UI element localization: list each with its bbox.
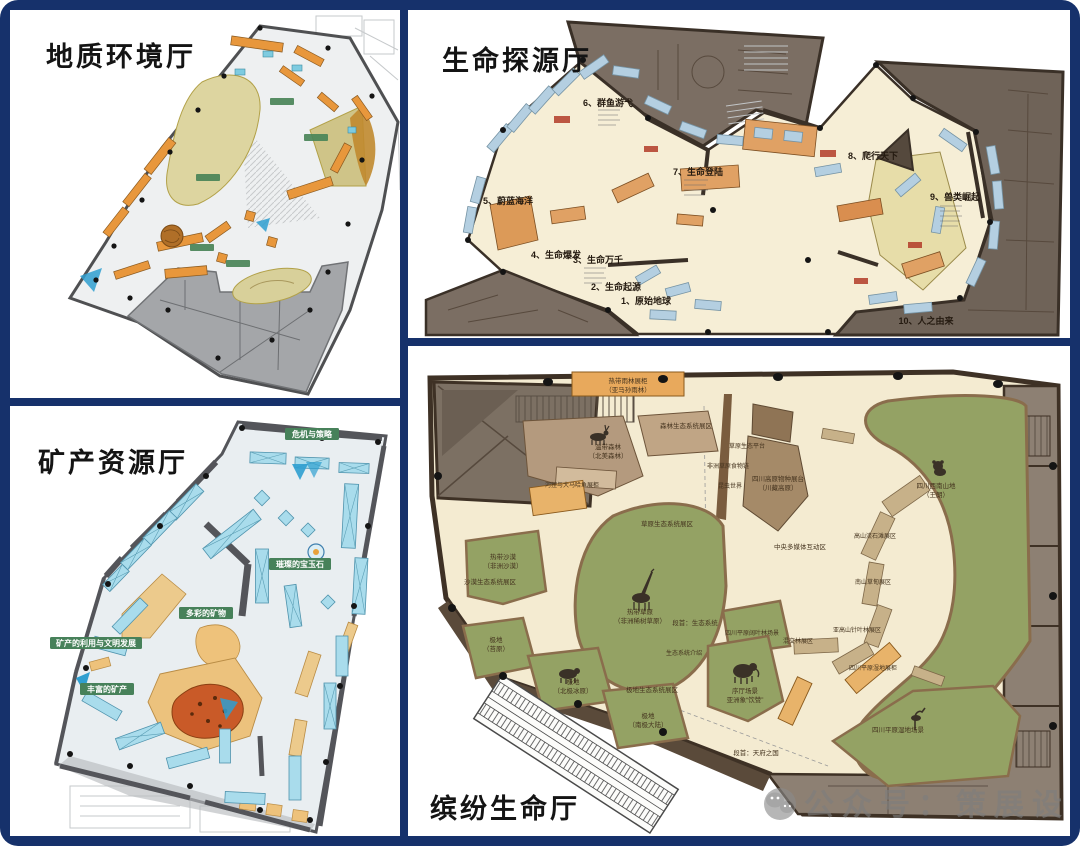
wetland-case-label: 四川平原湿地展柜 xyxy=(849,664,897,672)
zone-5-label: 5、蔚蓝海洋 xyxy=(483,195,533,206)
polar-tundra-label: 极地 xyxy=(490,635,504,644)
watermark: 公众号：策展设计 xyxy=(764,788,1070,822)
polar-antarctic-label: 极地 xyxy=(642,711,656,720)
zone-9-label: 9、兽类崛起 xyxy=(930,191,981,202)
lobby-scene-label: 序厅场景 xyxy=(732,686,759,695)
zone-8-label: 8、爬行天下 xyxy=(848,150,898,161)
mixed-zone-label: 混交林展区 xyxy=(783,637,813,645)
eco-intro-label: 生态系统介绍 xyxy=(666,649,702,657)
grass-zone-label: 草原生态系统展区 xyxy=(641,519,694,528)
forest-zone-label: 森林生态系统展区 xyxy=(660,421,713,430)
svg-text:（北极冰原）: （北极冰原） xyxy=(554,686,593,695)
temperate-forest-label: 温带森林 xyxy=(595,442,622,451)
plateau-case-label: 四川高原物种展台 xyxy=(752,474,804,483)
savanna-label: 热带草原 xyxy=(627,607,654,616)
beaver-case-label: 河狸与大马哈鱼展柜 xyxy=(545,481,599,489)
panel-colorful-life-hall: 热带雨林展柜 （亚马孙雨林） 温带森林 （北美森林） 森林生态系统展区 草原生态… xyxy=(408,346,1070,836)
section-crisis: 危机与策略 xyxy=(285,428,339,440)
panel-geology-hall: 地质环境厅 xyxy=(10,10,400,398)
intro-tianfu-label: 段首：天府之国 xyxy=(733,748,779,757)
section-gems: 璀璨的宝玉石 xyxy=(269,558,331,570)
svg-text:丰富的矿产: 丰富的矿产 xyxy=(87,684,127,694)
life-origin-floor-plan: 1、原始地球 2、生命起源 3、生命万千 4、生命爆发 5、蔚蓝海洋 6、群鱼游… xyxy=(408,10,1070,338)
watermark-text: 公众号：策展设计 xyxy=(804,788,1070,822)
media-zone-label: 中央多媒体互动区 xyxy=(774,542,827,551)
svg-text:亚洲象“饮赞”: 亚洲象“饮赞” xyxy=(727,695,764,704)
zone-10-label: 10、人之由来 xyxy=(898,315,954,326)
meadow-zone-label: 南山草甸展区 xyxy=(855,578,891,586)
polar-zone-label: 极地生态系统展区 xyxy=(626,685,679,694)
green-zone-lobby-elephant xyxy=(708,636,783,721)
svg-text:（非洲沙漠）: （非洲沙漠） xyxy=(484,561,523,570)
svg-text:（苔原）: （苔原） xyxy=(483,644,509,653)
svg-text:（王朗）: （王朗） xyxy=(923,490,949,499)
rainforest-case-label: 热带雨林展柜 xyxy=(609,376,649,385)
svg-text:（亚马孙雨林）: （亚马孙雨林） xyxy=(605,385,651,394)
specimen-table xyxy=(161,225,183,247)
gem-medallion xyxy=(308,544,324,560)
minerals-floor-plan: 危机与策略 璀璨的宝玉石 多彩的矿物 矿产的利用与文明发展 丰富的矿产 矿产资源… xyxy=(10,406,400,836)
panel-life-origin-hall: 1、原始地球 2、生命起源 3、生命万千 4、生命爆发 5、蔚蓝海洋 6、群鱼游… xyxy=(408,10,1070,338)
colorful-life-title: 缤纷生命厅 xyxy=(430,793,580,824)
southwest-label: 四川西南山地 xyxy=(917,481,957,490)
geology-title: 地质环境厅 xyxy=(46,42,196,72)
scree-zone-label: 高山流石滩展区 xyxy=(854,532,896,540)
zone-7-label: 7、生命登陆 xyxy=(673,166,723,177)
africa-chain-label: 非洲草原食物链 xyxy=(707,462,749,470)
colorful-life-floor-plan: 热带雨林展柜 （亚马孙雨林） 温带森林 （北美森林） 森林生态系统展区 草原生态… xyxy=(408,346,1070,836)
svg-text:（非洲稀树草原）: （非洲稀树草原） xyxy=(614,616,666,625)
svg-text:（北美森林）: （北美森林） xyxy=(589,451,628,460)
zone-4-label: 4、生命爆发 xyxy=(531,249,582,260)
svg-text:（川藏高原）: （川藏高原） xyxy=(759,483,798,492)
zone-1-label: 1、原始地球 xyxy=(621,295,672,306)
desert-zone-label: 沙漠生态系统展区 xyxy=(464,577,517,586)
insect-world-label: 昆虫世界 xyxy=(718,482,742,490)
grass-platform-label: 草原生态平台 xyxy=(729,442,765,450)
polar-arctic-label: 极地 xyxy=(567,677,581,686)
desert-label: 热带沙漠 xyxy=(490,552,517,561)
svg-text:矿产的利用与文明发展: 矿产的利用与文明发展 xyxy=(56,638,136,648)
geology-floor-plan: 地质环境厅 xyxy=(10,10,400,398)
svg-text:危机与策略: 危机与策略 xyxy=(291,429,333,439)
svg-text:璀璨的宝玉石: 璀璨的宝玉石 xyxy=(276,559,324,569)
section-colorful: 多彩的矿物 xyxy=(179,607,233,619)
intro-eco-label: 段首：生态系统 xyxy=(672,618,718,627)
section-usage: 矿产的利用与文明发展 xyxy=(50,637,142,649)
broadleaf-scene-label: 四川平原阔叶林场景 xyxy=(725,629,779,637)
wechat-icon xyxy=(764,788,796,820)
subalpine-zone-label: 亚高山针叶林展区 xyxy=(833,626,881,634)
panel-minerals-hall: 危机与策略 璀璨的宝玉石 多彩的矿物 矿产的利用与文明发展 丰富的矿产 矿产资源… xyxy=(10,406,400,836)
zone-6-label: 6、群鱼游弋 xyxy=(583,97,633,108)
svg-text:（南极大陆）: （南极大陆） xyxy=(629,720,668,729)
life-origin-title: 生命探源厅 xyxy=(442,45,592,76)
wetland-scene-label: 四川平原湿地场景 xyxy=(872,725,925,734)
svg-text:多彩的矿物: 多彩的矿物 xyxy=(186,608,226,618)
section-rich: 丰富的矿产 xyxy=(80,683,134,695)
minerals-title: 矿产资源厅 xyxy=(38,447,188,478)
